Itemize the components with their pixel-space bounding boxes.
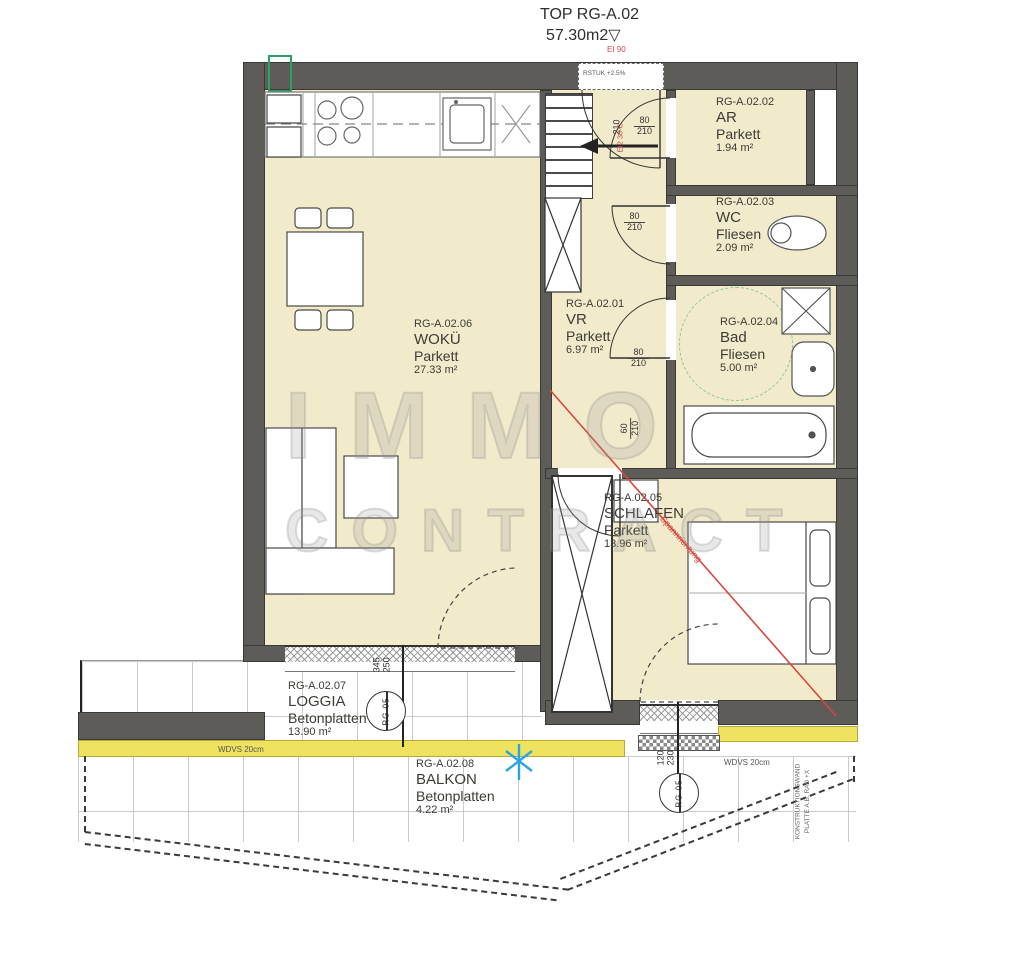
room-name: AR — [716, 109, 774, 126]
room-name: BALKON — [416, 771, 495, 788]
dim-height: 210 — [628, 359, 649, 369]
dim-height: 210 — [631, 418, 641, 439]
dim-height: 250 — [383, 657, 393, 672]
dim-door-ar: 80 210 — [634, 116, 655, 137]
shaft-large — [552, 476, 612, 712]
dim-height: 210 — [624, 223, 645, 233]
wdvs-label-right: WDVS 20cm — [724, 758, 770, 767]
plan-symbols-layer — [0, 0, 1024, 954]
kitchen-counter — [265, 92, 540, 157]
dim-window-loggia: 345 250 — [373, 657, 393, 672]
level-mark-icon: ▽ — [608, 27, 620, 44]
dining-set — [287, 208, 363, 330]
room-floor: Betonplatten — [288, 710, 367, 726]
room-label-vr: RG-A.02.01 VR Parkett 6.97 m² — [566, 298, 624, 357]
sofa — [266, 428, 398, 594]
room-label-balkon: RG-A.02.08 BALKON Betonplatten 4.22 m² — [416, 758, 495, 817]
room-id: RG-A.02.06 — [414, 318, 472, 331]
room-area: 4.22 m² — [416, 804, 495, 817]
bathroom-sink-icon — [792, 342, 834, 396]
plan-area-value: 57.30m2 — [546, 27, 608, 44]
marker-label: RG 05 — [675, 779, 684, 807]
dim-door-balkon: 120 230 — [657, 750, 677, 765]
room-floor: Parkett — [716, 126, 774, 142]
wdvs-label-left: WDVS 20cm — [218, 745, 264, 754]
room-name: VR — [566, 311, 624, 328]
coffee-table — [344, 456, 398, 518]
room-label-ar: RG-A.02.02 AR Parkett 1.94 m² — [716, 96, 774, 155]
room-id: RG-A.02.01 — [566, 298, 624, 311]
dim-height: 210 — [634, 127, 655, 137]
marker-label: RG 05 — [382, 697, 391, 725]
room-label-bad: RG-A.02.04 Bad Fliesen 5.00 m² — [720, 316, 778, 375]
door-loggia-dashed — [438, 568, 518, 648]
room-floor: Betonplatten — [416, 788, 495, 804]
room-area: 1.94 m² — [716, 142, 774, 155]
room-floor: Parkett — [414, 348, 472, 364]
room-id: RG-A.02.04 — [720, 316, 778, 329]
fire-note: EI 90 — [607, 45, 626, 54]
room-name: SCHLAFEN — [604, 505, 684, 522]
room-area: 5.00 m² — [720, 362, 778, 375]
dim-door-bad: 80 210 — [628, 348, 649, 369]
survey-mark-icon — [506, 744, 532, 780]
room-name: LOGGIA — [288, 693, 367, 710]
room-area: 27.33 m² — [414, 364, 472, 377]
room-label-loggia: RG-A.02.07 LOGGIA Betonplatten 13.90 m² — [288, 680, 367, 739]
room-area: 13.90 m² — [288, 726, 367, 739]
dim-door-schlafen: 60 210 — [620, 418, 641, 439]
dim-door-wc: 80 210 — [624, 212, 645, 233]
axis-loggia-window — [402, 645, 404, 747]
bathtub-icon — [684, 406, 834, 464]
plan-title: TOP RG-A.02 — [540, 6, 639, 24]
side-annotation-1: KONSTRUKTIONSWAND — [794, 764, 801, 840]
room-area: 6.97 m² — [566, 344, 624, 357]
marker-balkon-door: RG 05 — [659, 773, 699, 813]
room-area: 2.09 m² — [716, 242, 774, 255]
sink-icon — [443, 98, 491, 150]
dim-height: 230 — [667, 750, 677, 765]
room-name: WC — [716, 209, 774, 226]
room-floor: Fliesen — [720, 346, 778, 362]
floor-plan: RSTUK +2.5% RG 05 RG 05 — [0, 0, 1024, 954]
washing-machine-icon — [782, 288, 830, 334]
room-id: RG-A.02.07 — [288, 680, 367, 693]
room-area: 13.96 m² — [604, 538, 684, 551]
side-annotation-2: PLATTE A.B. RAD +X — [804, 770, 811, 833]
room-id: RG-A.02.05 — [604, 492, 684, 505]
room-name: WOKÜ — [414, 331, 472, 348]
room-floor: Fliesen — [716, 226, 774, 242]
dim-entrance-height: 210 — [613, 119, 623, 134]
entrance-note: RSTUK +2.5% — [583, 70, 625, 77]
room-label-wc: RG-A.02.03 WC Fliesen 2.09 m² — [716, 196, 774, 255]
room-name: Bad — [720, 329, 778, 346]
plan-area: 57.30m2▽ — [546, 25, 621, 45]
room-floor: Parkett — [566, 328, 624, 344]
marker-loggia-window: RG 05 — [366, 691, 406, 731]
room-label-woku: RG-A.02.06 WOKÜ Parkett 27.33 m² — [414, 318, 472, 377]
bed — [688, 522, 836, 664]
room-id: RG-A.02.08 — [416, 758, 495, 771]
toilet-icon — [768, 216, 826, 250]
room-id: RG-A.02.02 — [716, 96, 774, 109]
room-id: RG-A.02.03 — [716, 196, 774, 209]
shaft-small — [545, 198, 581, 292]
